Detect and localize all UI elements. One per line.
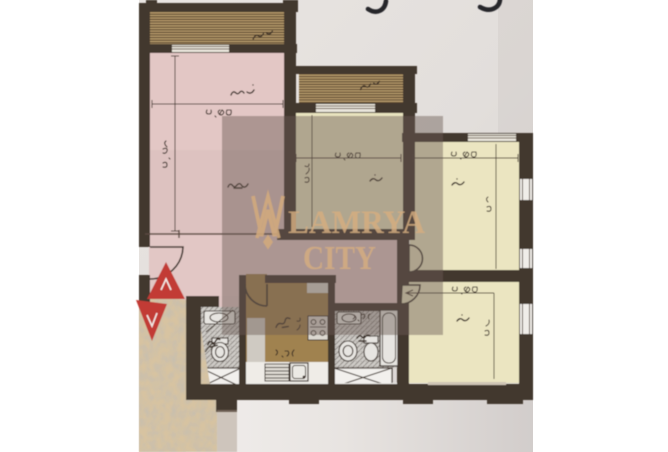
svg-text:CITY: CITY	[303, 240, 376, 277]
svg-text:LAMRYA: LAMRYA	[288, 205, 425, 241]
